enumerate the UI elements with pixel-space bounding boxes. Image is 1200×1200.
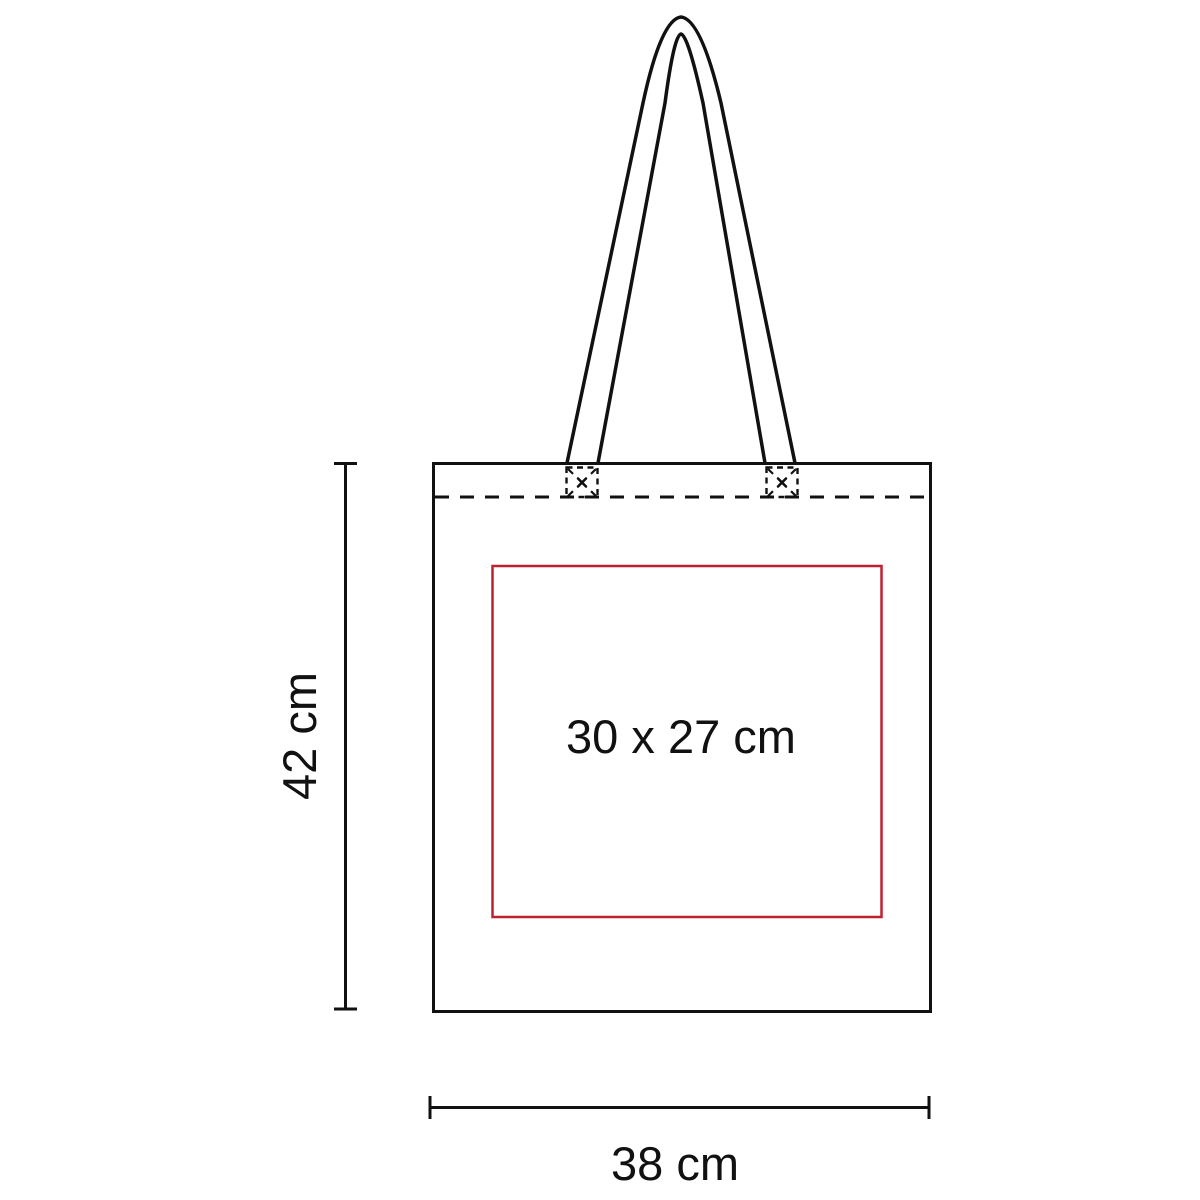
diagram-canvas: 30 x 27 cm 42 cm 38 cm bbox=[0, 0, 1200, 1200]
height-dimension-label: 42 cm bbox=[273, 672, 326, 800]
bag-handles bbox=[567, 17, 795, 463]
handle-inner-line bbox=[598, 34, 765, 463]
width-dimension-label: 38 cm bbox=[611, 1137, 739, 1190]
handle-outer-line bbox=[567, 17, 795, 463]
height-dimension: 42 cm bbox=[273, 464, 357, 1010]
width-dimension: 38 cm bbox=[430, 1096, 929, 1190]
bag-dimension-diagram: 30 x 27 cm 42 cm 38 cm bbox=[0, 0, 1200, 1200]
print-area-label: 30 x 27 cm bbox=[566, 710, 796, 763]
